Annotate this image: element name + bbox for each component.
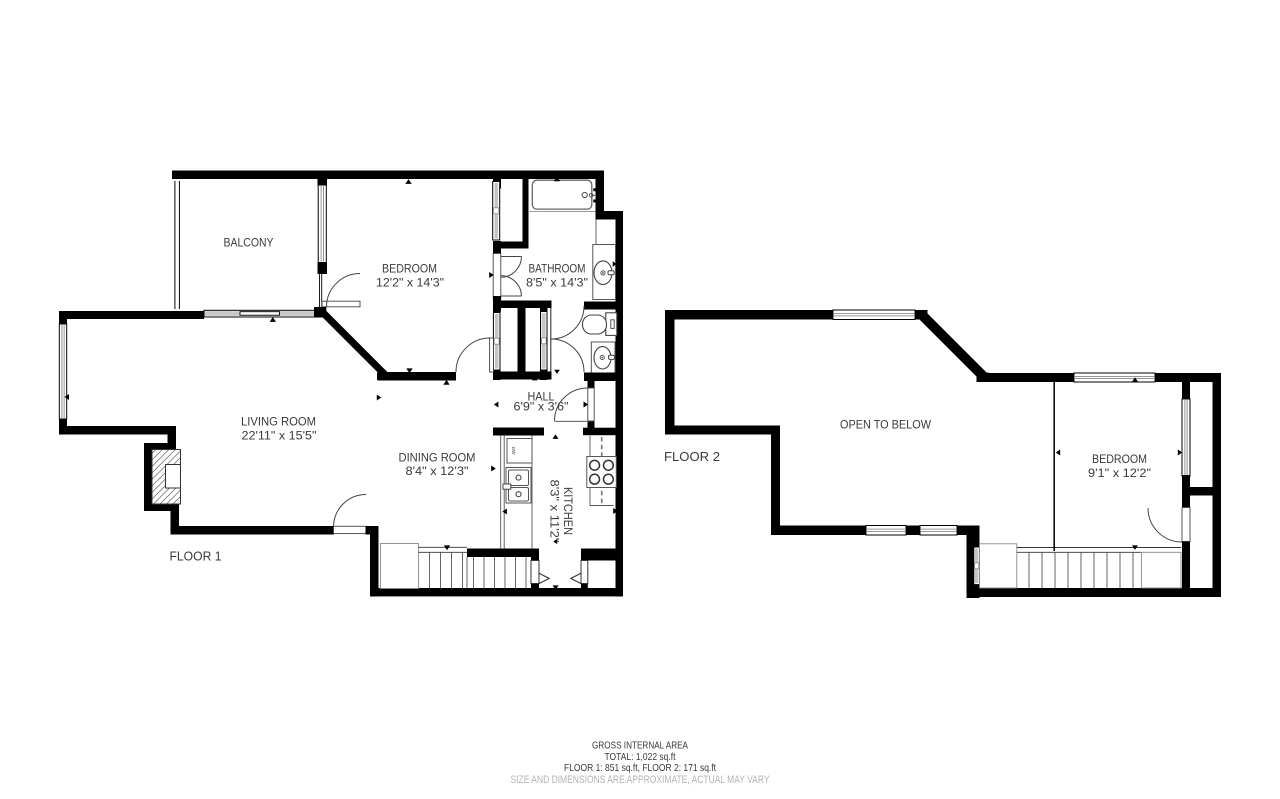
svg-text:9'1" x 12'2": 9'1" x 12'2" (1088, 468, 1151, 480)
svg-text:LIVING ROOM: LIVING ROOM (241, 417, 316, 429)
svg-text:FLOOR 1: 851 sq.ft, FLOOR 2: 1: FLOOR 1: 851 sq.ft, FLOOR 2: 171 sq.ft (564, 762, 716, 774)
svg-text:GROSS INTERNAL AREA: GROSS INTERNAL AREA (592, 740, 688, 752)
svg-text:22'11" x 15'5": 22'11" x 15'5" (242, 431, 317, 443)
svg-text:6'9" x 3'6": 6'9" x 3'6" (514, 402, 569, 414)
svg-text:8'3" x 11'2": 8'3" x 11'2" (548, 480, 560, 543)
svg-text:OPEN TO BELOW: OPEN TO BELOW (840, 420, 931, 432)
svg-text:KITCHEN: KITCHEN (561, 487, 573, 535)
svg-text:BEDROOM: BEDROOM (1092, 454, 1147, 466)
svg-text:BEDROOM: BEDROOM (382, 264, 437, 276)
svg-text:FLOOR 1: FLOOR 1 (170, 549, 222, 564)
svg-text:BATHROOM: BATHROOM (529, 264, 586, 276)
svg-text:SIZE AND DIMENSIONS ARE APPROX: SIZE AND DIMENSIONS ARE APPROXIMATE, ACT… (511, 774, 771, 786)
svg-text:8'4" x 12'3": 8'4" x 12'3" (406, 466, 469, 478)
svg-text:12'2" x 14'3": 12'2" x 14'3" (376, 278, 444, 290)
svg-text:8'5" x 14'3": 8'5" x 14'3" (526, 278, 588, 290)
svg-text:DINING ROOM: DINING ROOM (399, 453, 476, 465)
svg-text:DW: DW (511, 447, 516, 455)
svg-text:FLOOR 2: FLOOR 2 (664, 449, 720, 464)
svg-text:BALCONY: BALCONY (224, 238, 274, 250)
